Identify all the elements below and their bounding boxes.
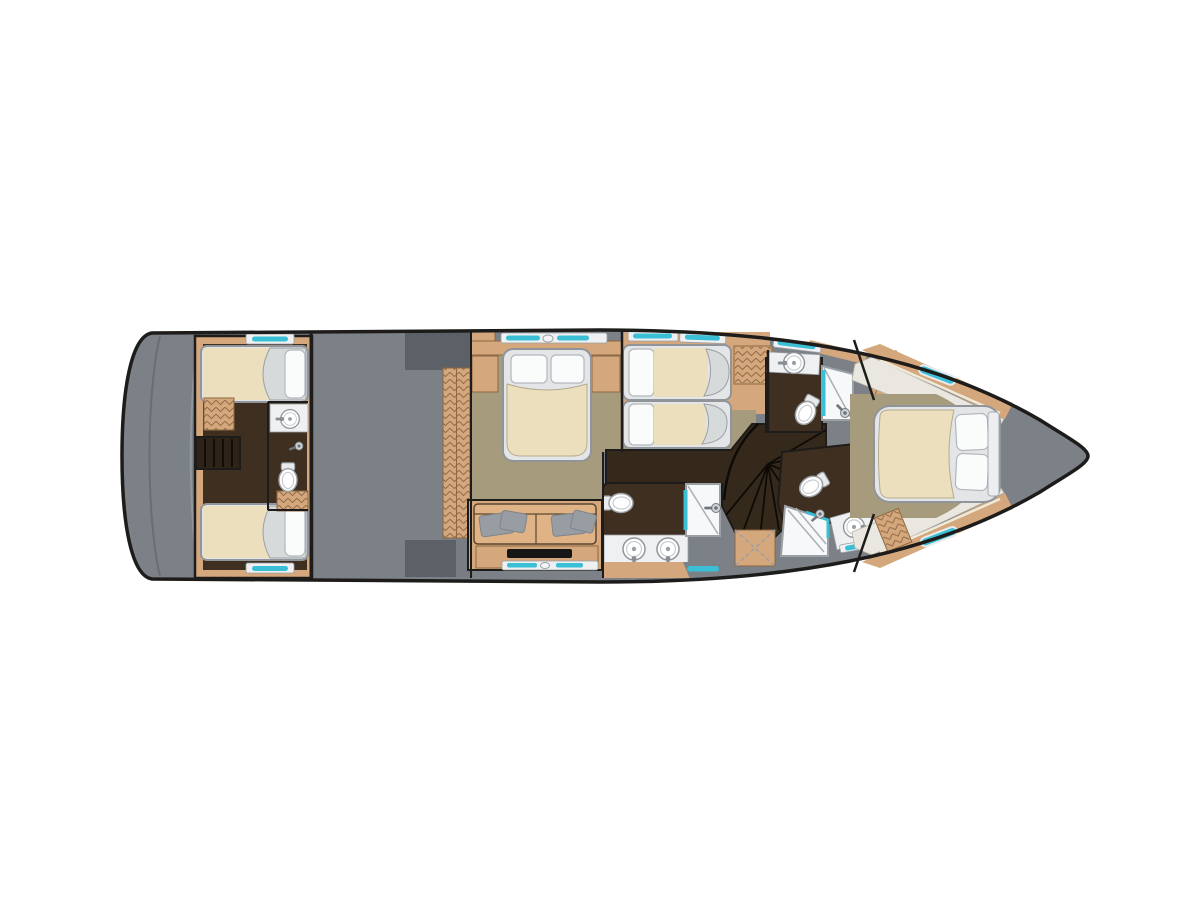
guest-bath-shower-accent xyxy=(822,370,826,416)
master-wardrobe-column xyxy=(443,368,470,538)
twin-bed-bottom-pillow xyxy=(629,404,654,445)
twin-window-left xyxy=(633,334,672,339)
aft-wardrobe-top-pattern xyxy=(204,398,234,430)
twin-bed-bottom xyxy=(623,401,731,448)
aft-bed-top xyxy=(201,346,308,402)
vip-pillow-bottom xyxy=(955,453,989,491)
day-head-shower xyxy=(684,484,721,536)
vip-bed-mattress xyxy=(879,410,955,498)
vip-bed xyxy=(874,406,1000,502)
day-head-bathroom xyxy=(602,483,740,579)
master-pillow-left xyxy=(511,355,547,383)
deck-hatch xyxy=(735,530,775,566)
master-duvet xyxy=(507,384,587,456)
master-console-window-right xyxy=(556,563,583,568)
master-pillow-right xyxy=(551,355,584,383)
aft-wardrobe-bottom-pattern xyxy=(277,491,308,511)
aft-window-bottom xyxy=(252,566,288,571)
vip-headboard xyxy=(988,412,999,496)
guest-bath-shower xyxy=(822,366,853,420)
aft-bed-bottom xyxy=(201,504,308,560)
aft-wardrobe-top xyxy=(204,398,234,430)
aft-guest-cabin xyxy=(195,334,312,578)
day-head-toilet-icon xyxy=(603,494,633,513)
aft-bed-top-pillow xyxy=(285,350,305,398)
vip-pillow-top xyxy=(955,413,989,451)
aft-companionway-steps xyxy=(196,437,240,469)
floor-plan-stage: yacht-lower-deck-floor-plan xyxy=(0,0,1200,900)
master-window-knob xyxy=(543,335,553,342)
aft-bed-bottom-pillow xyxy=(285,508,305,556)
aft-window-top xyxy=(252,337,288,342)
master-tv xyxy=(507,549,572,558)
twin-bed-bottom-mattress xyxy=(654,404,706,445)
twin-bed-top-pillow xyxy=(629,349,654,396)
aft-wardrobe-bottom xyxy=(277,491,308,511)
master-window-right xyxy=(557,336,589,341)
master-console-knob xyxy=(541,563,550,569)
twin-bed-top-mattress xyxy=(654,348,708,397)
yacht-floor-plan: yacht-lower-deck-floor-plan xyxy=(0,0,1200,900)
master-nightstand-right xyxy=(592,356,620,392)
master-windows xyxy=(501,333,607,343)
master-nightstand-left xyxy=(472,356,498,392)
vip-cabin xyxy=(850,344,1013,568)
engine-room-block-top xyxy=(405,331,473,370)
master-sofa-pillow-2 xyxy=(499,510,527,533)
day-head-shower-accent xyxy=(684,490,688,530)
master-sofa-alcove xyxy=(468,500,602,570)
vip-bath-shower xyxy=(781,506,828,556)
master-window-left xyxy=(506,336,540,341)
day-head-base-trim xyxy=(602,562,690,578)
day-head-window-accent xyxy=(687,566,719,572)
master-console-window-left xyxy=(507,563,537,568)
aft-toilet-icon xyxy=(279,463,297,492)
master-bed xyxy=(503,349,591,461)
twin-bed-top xyxy=(623,345,731,400)
